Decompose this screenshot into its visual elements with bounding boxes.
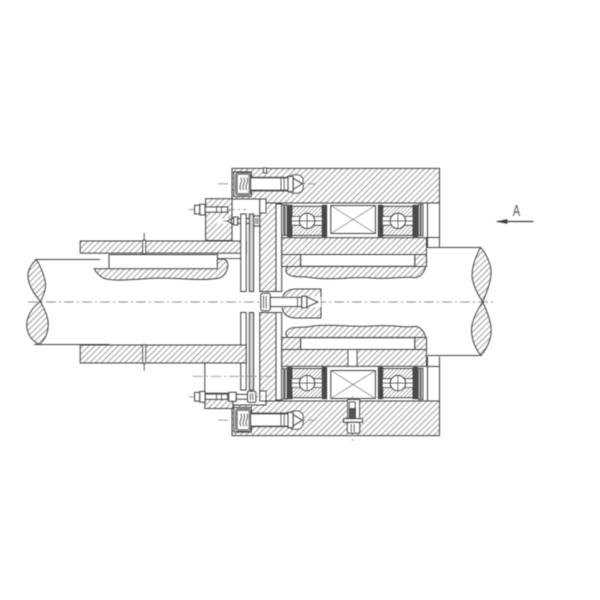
svg-text:A: A (513, 202, 521, 220)
